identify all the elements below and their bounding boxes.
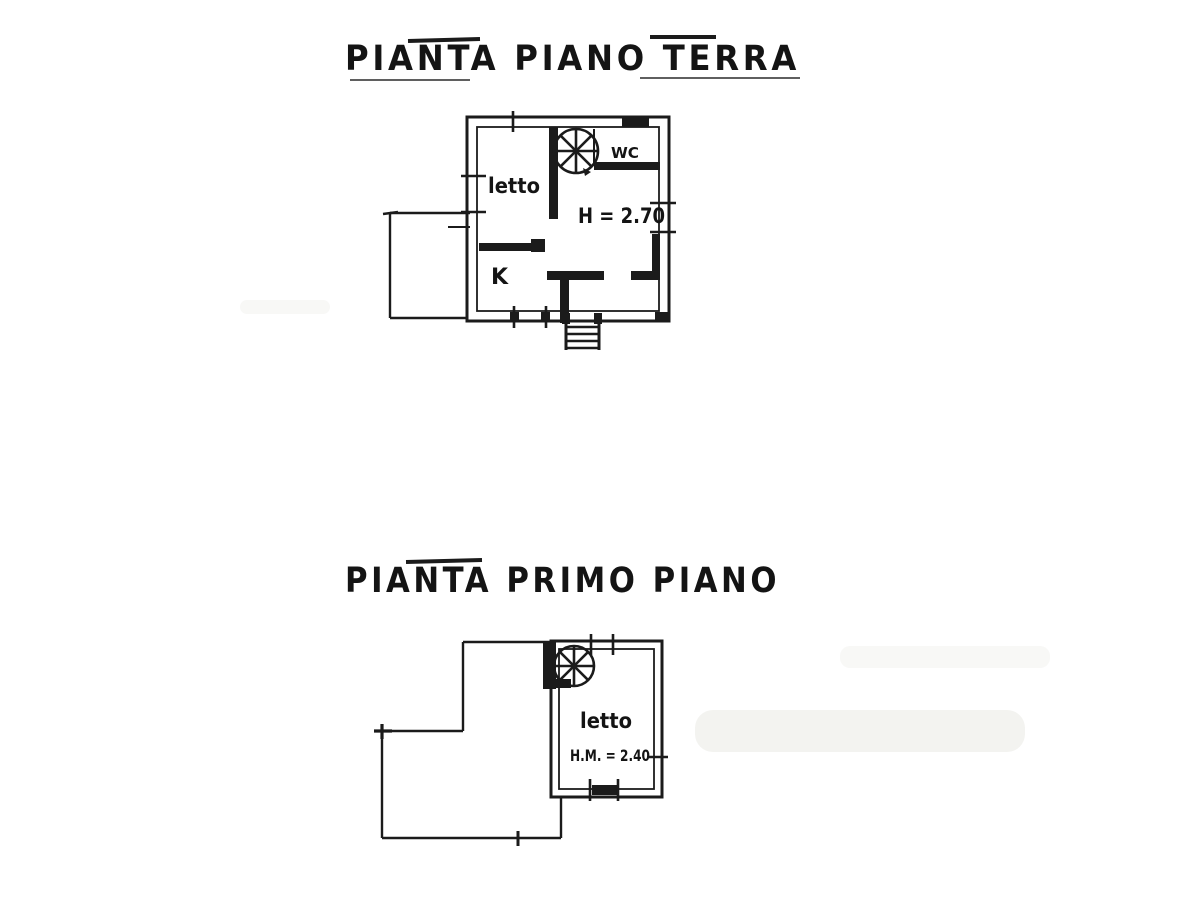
scanned-floor-plan-page: PIANTA PIANO TERRA xyxy=(0,0,1200,900)
ground-floor-title: PIANTA PIANO TERRA xyxy=(345,39,800,79)
ground-floor-plan: PIANTA PIANO TERRA xyxy=(345,37,800,350)
corner-partition-stem xyxy=(652,234,660,280)
title-overbar xyxy=(406,560,482,562)
kitchen-label: K xyxy=(491,265,509,290)
terrace-outline xyxy=(383,212,470,318)
door-bottom-wall xyxy=(592,785,617,795)
wall-pier xyxy=(531,239,545,252)
scan-smudge xyxy=(695,710,1025,752)
first-floor-title: PIANTA PRIMO PIANO xyxy=(345,561,780,601)
floor-plan-drawing: PIANTA PIANO TERRA xyxy=(0,0,1200,900)
spiral-staircase xyxy=(554,646,594,686)
entry-steps xyxy=(562,313,602,350)
terrace-outline xyxy=(374,642,561,846)
wc-label: WC xyxy=(611,144,639,162)
scan-artifacts xyxy=(240,300,1050,752)
bedroom-partition-wall xyxy=(479,243,537,251)
corner-fill xyxy=(655,312,668,321)
window-top-wall xyxy=(622,116,649,127)
title-overbar xyxy=(408,39,480,41)
wc-partition-wall xyxy=(594,162,660,170)
first-floor-plan: PIANTA PRIMO PIANO xyxy=(345,560,780,846)
spiral-staircase xyxy=(554,129,598,176)
ceiling-height-label: H.M. = 2.40 xyxy=(570,746,650,765)
bedroom-label: letto xyxy=(488,174,540,198)
scan-smudge xyxy=(240,300,330,314)
ceiling-height-label: H = 2.70 xyxy=(578,204,665,228)
scan-smudge xyxy=(840,646,1050,668)
bedroom-label: letto xyxy=(580,709,632,733)
entry-partition-wall xyxy=(547,271,604,280)
